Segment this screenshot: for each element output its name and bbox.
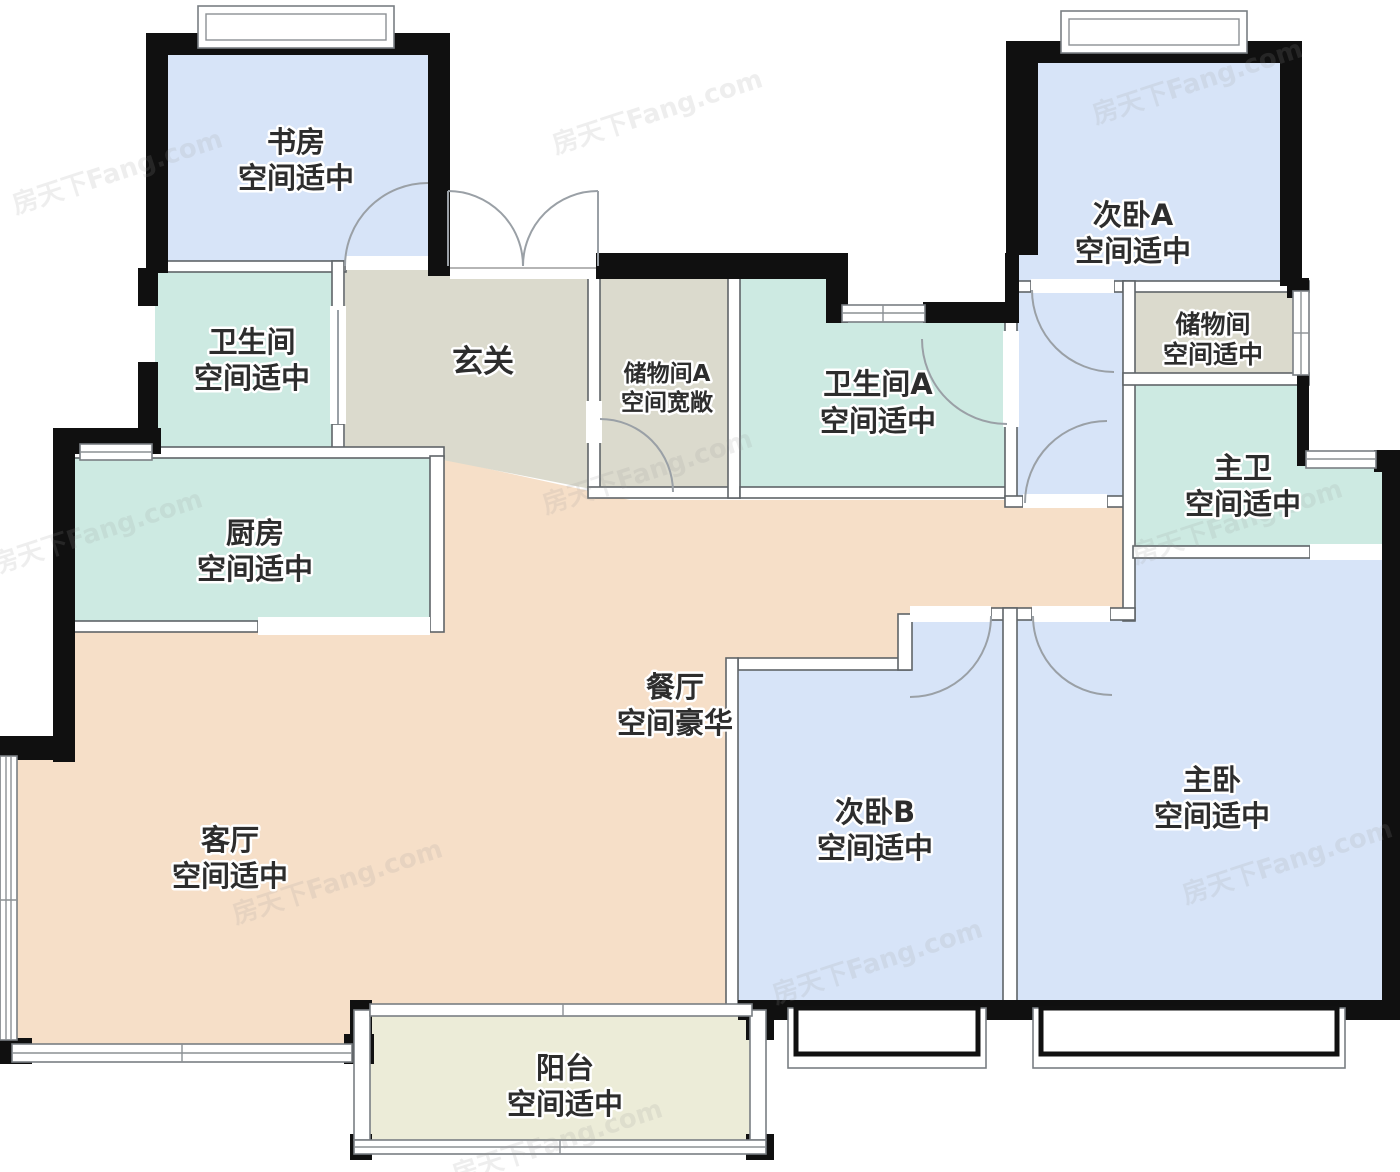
label-storage-a-note: 空间宽敞 [621,389,714,416]
master-bath-window [1306,451,1376,468]
label-bedroom-a-note: 空间适中 [1075,234,1191,268]
kitchen-window [80,444,152,460]
watermark-text: 房天下Fang.com [549,64,767,160]
label-master-bath-name: 主卫 [1214,451,1272,485]
label-foyer-name: 玄关 [452,344,514,380]
label-living-name: 客厅 [201,823,259,857]
bathroom-a-window [842,305,925,322]
label-master-bedroom-note: 空间适中 [1154,799,1270,833]
label-master-bedroom-name: 主卧 [1183,763,1241,797]
floorplan-canvas: 房天下Fang.com 房天下Fang.com 房天下Fang.com 房天下F… [0,0,1400,1172]
label-kitchen-name: 厨房 [226,516,284,550]
label-bathroom-a-name: 卫生间A [823,367,933,401]
floor-areas [16,55,1382,1140]
label-balcony-name: 阳台 [536,1051,594,1085]
bedroom-b-bay-window [788,1008,986,1068]
label-bathroom-name: 卫生间 [208,325,295,359]
label-living-note: 空间适中 [172,859,288,893]
study-window [198,6,394,48]
living-bottom-window [12,1044,352,1062]
label-dining-name: 餐厅 [646,670,704,704]
storage-window [1293,291,1309,375]
label-storage-note: 空间适中 [1163,340,1263,369]
label-bedroom-b-name: 次卧B [835,795,915,829]
label-balcony-note: 空间适中 [507,1087,623,1121]
bedroom-a-window [1061,11,1247,53]
label-bathroom-a-note: 空间适中 [820,404,936,438]
label-study-note: 空间适中 [238,161,354,195]
living-left-window [0,756,17,1040]
label-dining-note: 空间豪华 [617,706,733,740]
master-bay-window [1033,1008,1345,1068]
label-storage-a-name: 储物间A [624,360,711,387]
label-bedroom-a-name: 次卧A [1093,198,1174,232]
label-study-name: 书房 [267,125,325,159]
label-master-bath-note: 空间适中 [1185,487,1301,521]
label-storage-name: 储物间 [1175,310,1250,339]
label-bathroom-note: 空间适中 [194,361,310,395]
label-bedroom-b-note: 空间适中 [817,831,933,865]
area-bathroom [155,272,332,447]
floorplan-svg: 房天下Fang.com 房天下Fang.com 房天下Fang.com 房天下F… [0,0,1400,1172]
label-kitchen-note: 空间适中 [197,552,313,586]
area-hallway [1017,292,1123,496]
